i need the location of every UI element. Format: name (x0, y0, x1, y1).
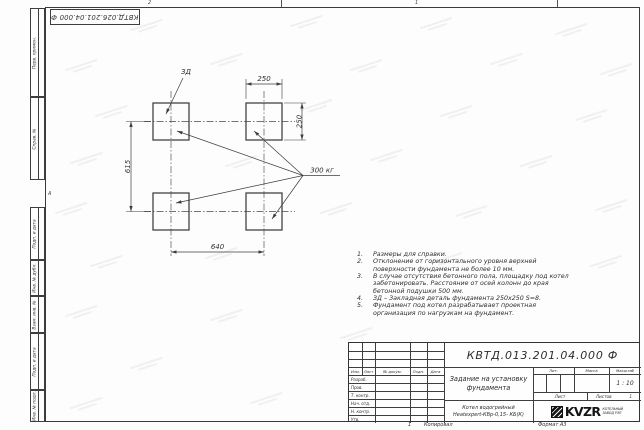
center-lines (144, 91, 295, 256)
row-nkontr: Н. контр. (349, 407, 377, 415)
load-leader (272, 176, 303, 220)
note-number: 2. (354, 258, 373, 273)
document-designation: КВТД.013.201.04.000 Ф (444, 343, 641, 367)
sheets-label: Листов (596, 394, 612, 399)
kvzr-logo-icon (551, 406, 563, 418)
product-name: Котел водогрейный Heatexpert-КВр-0,15- К… (446, 400, 531, 423)
scale-header: Масштаб (609, 367, 641, 374)
note-item: 2. Отклонение от горизонтального уровня … (354, 258, 586, 273)
leader-lines (166, 78, 340, 219)
note-number: 5. (354, 302, 373, 317)
col-header-izm: Изм. (349, 367, 362, 375)
sheets-value: 1 (629, 394, 632, 399)
extension-lines (126, 79, 306, 212)
sheets-cell: Листов 1 (587, 392, 641, 400)
dim-label-bottom: 640 (211, 243, 225, 251)
load-leader (177, 131, 303, 176)
row-utv: Утв. (349, 415, 377, 423)
row-prov: Пров. (349, 383, 377, 391)
title-block-line (410, 343, 411, 423)
col-header-data: Дата (427, 367, 444, 375)
dimension-lines (131, 84, 302, 252)
title-block-line (560, 374, 561, 392)
title-block: Изм. Лист № докум. Подп. Дата Разраб. Пр… (348, 342, 640, 422)
footer-copied-label: Копировал (424, 422, 453, 428)
document-title: Задание на установку фундамента (446, 367, 531, 400)
note-text: Фундамент под котел разрабатывает проект… (373, 302, 575, 317)
mass-header: Масса (574, 367, 609, 374)
footer-format-label: Формат А3 (538, 422, 566, 428)
note-number: 4. (354, 295, 373, 302)
scale-value: 1 : 10 (609, 374, 641, 392)
notes-list: 1. Размеры для справки. 2. Отклонение от… (354, 251, 586, 317)
dim-label-top: 250 (257, 75, 271, 83)
title-block-line (546, 374, 547, 392)
note-number: 1. (354, 251, 373, 258)
title-block-line (427, 343, 428, 423)
lit-header: Лит. (533, 367, 574, 374)
product-name-line2: Heatexpert-КВр-0,15- КБ(К) (453, 412, 524, 418)
manufacturer-logo: KVZR КОТЕЛЬНЫЙ ЗАВОД РЭП (551, 404, 623, 419)
load-leader (176, 176, 303, 204)
note-item: 5. Фундамент под котел разрабатывает про… (354, 302, 586, 317)
sheet-label: Лист (533, 392, 587, 400)
title-block-line (349, 359, 444, 360)
col-header-docnum: № докум. (375, 367, 410, 375)
note-text: Размеры для справки. (373, 251, 575, 258)
title-block-line (349, 351, 444, 352)
note-text: Отклонение от горизонтального уровня вер… (373, 258, 575, 273)
col-header-podp: Подп. (410, 367, 427, 375)
note-item: 1. Размеры для справки. (354, 251, 586, 258)
note-item: 3. В случае отсутствия бетонного пола, п… (354, 273, 586, 295)
row-razrab: Разраб. (349, 375, 377, 383)
kvzr-caption-line2: ЗАВОД РЭП (602, 412, 623, 416)
load-label: 300 кг (310, 167, 334, 175)
kvzr-logo-text: KVZR (565, 404, 601, 419)
load-leader (254, 131, 303, 176)
manufacturer-logo-cell: KVZR КОТЕЛЬНЫЙ ЗАВОД РЭП (533, 400, 641, 423)
dim-label-left: 615 (124, 159, 132, 173)
foundation-pad (246, 193, 282, 230)
col-header-list: Лист (362, 367, 375, 375)
note-number: 3. (354, 273, 373, 295)
footer-sheet-number: 1 (408, 422, 411, 428)
row-tkontr: Т. контр. (349, 391, 377, 399)
dim-label-right: 250 (296, 114, 304, 128)
note-text: В случае отсутствия бетонного пола, площ… (373, 273, 575, 295)
kvzr-logo-caption: КОТЕЛЬНЫЙ ЗАВОД РЭП (602, 408, 623, 416)
embed-label: ЗД (181, 68, 191, 76)
embed-leader (166, 78, 183, 114)
row-nachotd: Нач. отд. (349, 399, 377, 407)
drawing-sheet: 2 1 А КВТД.026.201.04.000 Ф Перв. примен… (0, 0, 644, 430)
foundation-pads (153, 103, 282, 230)
